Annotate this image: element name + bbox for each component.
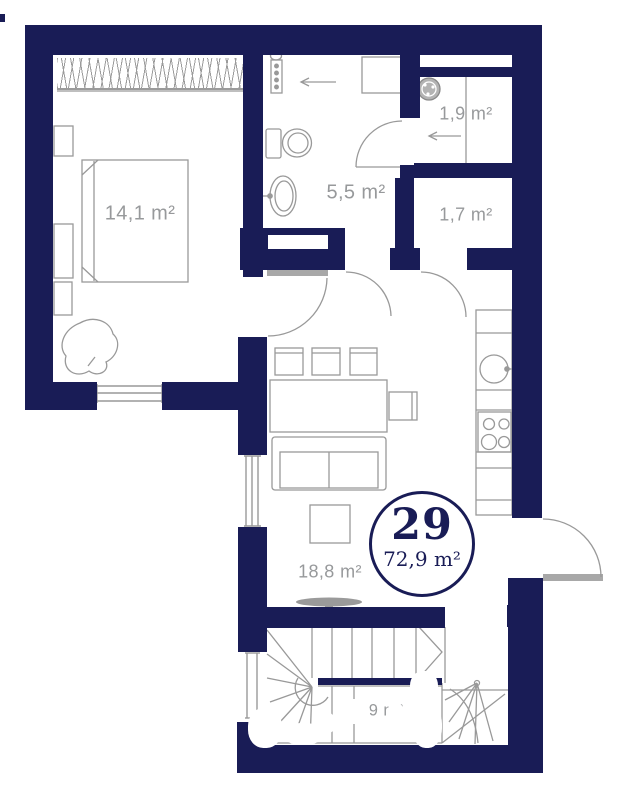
wall (507, 605, 513, 627)
watermark-blob (312, 712, 336, 734)
wall (400, 55, 420, 118)
wall (512, 25, 542, 518)
wall-niche (268, 235, 328, 249)
door-bathroom (346, 272, 391, 316)
unit-total-area: 72,9 m² (372, 548, 472, 570)
bathroom-radiator (271, 52, 283, 93)
floor-plan: 14,1 m² 5,5 m² 1,9 m² 1,7 m² 18,8 m² 10,… (0, 0, 625, 800)
area-label-storage: 1,9 m² (439, 104, 492, 125)
door-wc (421, 272, 466, 317)
living-window (244, 456, 261, 526)
bathroom-arrow-icon (301, 78, 336, 86)
toilet-icon (266, 129, 312, 158)
coffee-table (310, 505, 350, 543)
wall (508, 578, 543, 773)
sofa (272, 437, 386, 490)
area-label-bedroom: 14,1 m² (105, 203, 176, 226)
area-label-bathroom: 5,5 m² (326, 182, 385, 205)
shower-tray (362, 57, 401, 93)
area-label-living: 18,8 m² (298, 562, 362, 583)
door-bathroom-storage (356, 121, 402, 167)
bedroom-window (97, 384, 162, 403)
wall (237, 745, 543, 773)
nightstand (54, 126, 73, 315)
watermark-blob (337, 699, 370, 724)
unit-badge: 29 72,9 m² (369, 491, 475, 597)
storage-arrow-icon (429, 132, 461, 140)
wall (390, 248, 420, 270)
plant-icon (62, 319, 118, 374)
unit-number: 29 (372, 503, 472, 548)
washing-machine-icon (418, 78, 440, 100)
entry-door (543, 519, 603, 581)
dining-table (270, 380, 387, 432)
watermark-blob (410, 671, 438, 703)
wall (25, 382, 97, 410)
stove-icon (478, 412, 511, 452)
wardrobe (57, 58, 243, 90)
door-bedroom (267, 270, 328, 336)
wall (25, 25, 542, 55)
area-label-wc: 1,7 m² (439, 205, 492, 226)
wall (414, 163, 512, 178)
wall (238, 527, 267, 652)
dining-chair (275, 348, 417, 420)
wall (162, 382, 241, 410)
watermark-blob (248, 708, 282, 748)
wall (25, 25, 53, 410)
watermark-blob (412, 704, 442, 748)
kitchen-sink-icon (480, 355, 513, 383)
watermark-blob (388, 702, 403, 720)
wall (417, 67, 512, 77)
watermark-fragment (0, 14, 5, 22)
sink-icon (263, 176, 296, 216)
wall (238, 337, 267, 455)
wall (467, 248, 513, 270)
wall (265, 607, 445, 628)
